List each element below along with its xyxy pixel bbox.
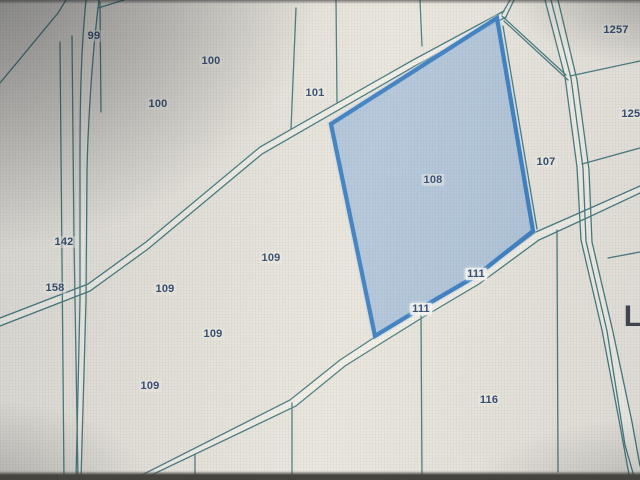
parcel-label-109: 109	[260, 252, 283, 264]
place-label: L	[624, 300, 640, 334]
parcel-label-100: 100	[147, 98, 170, 110]
parcel-label-1257: 1257	[601, 24, 630, 36]
parcel-label-142: 142	[53, 236, 76, 248]
parcel-label-99: 99	[86, 30, 103, 42]
parcel-label-116: 116	[478, 394, 500, 406]
parcel-label-107: 107	[535, 156, 558, 168]
parcel-label-158: 158	[44, 282, 67, 294]
parcel-label-111: 111	[465, 268, 487, 280]
parcel-label-100: 100	[200, 55, 223, 67]
parcel-labels-layer: 9910010010112571258107108142158109109109…	[0, 0, 640, 480]
parcel-label-1258: 1258	[619, 108, 640, 120]
parcel-label-111: 111	[410, 303, 432, 315]
parcel-label-108: 108	[422, 174, 445, 186]
parcel-label-109: 109	[154, 283, 177, 295]
parcel-label-109: 109	[139, 380, 162, 392]
parcel-label-101: 101	[304, 87, 327, 99]
parcel-label-109: 109	[202, 328, 225, 340]
map-viewport[interactable]: 9910010010112571258107108142158109109109…	[0, 0, 640, 480]
